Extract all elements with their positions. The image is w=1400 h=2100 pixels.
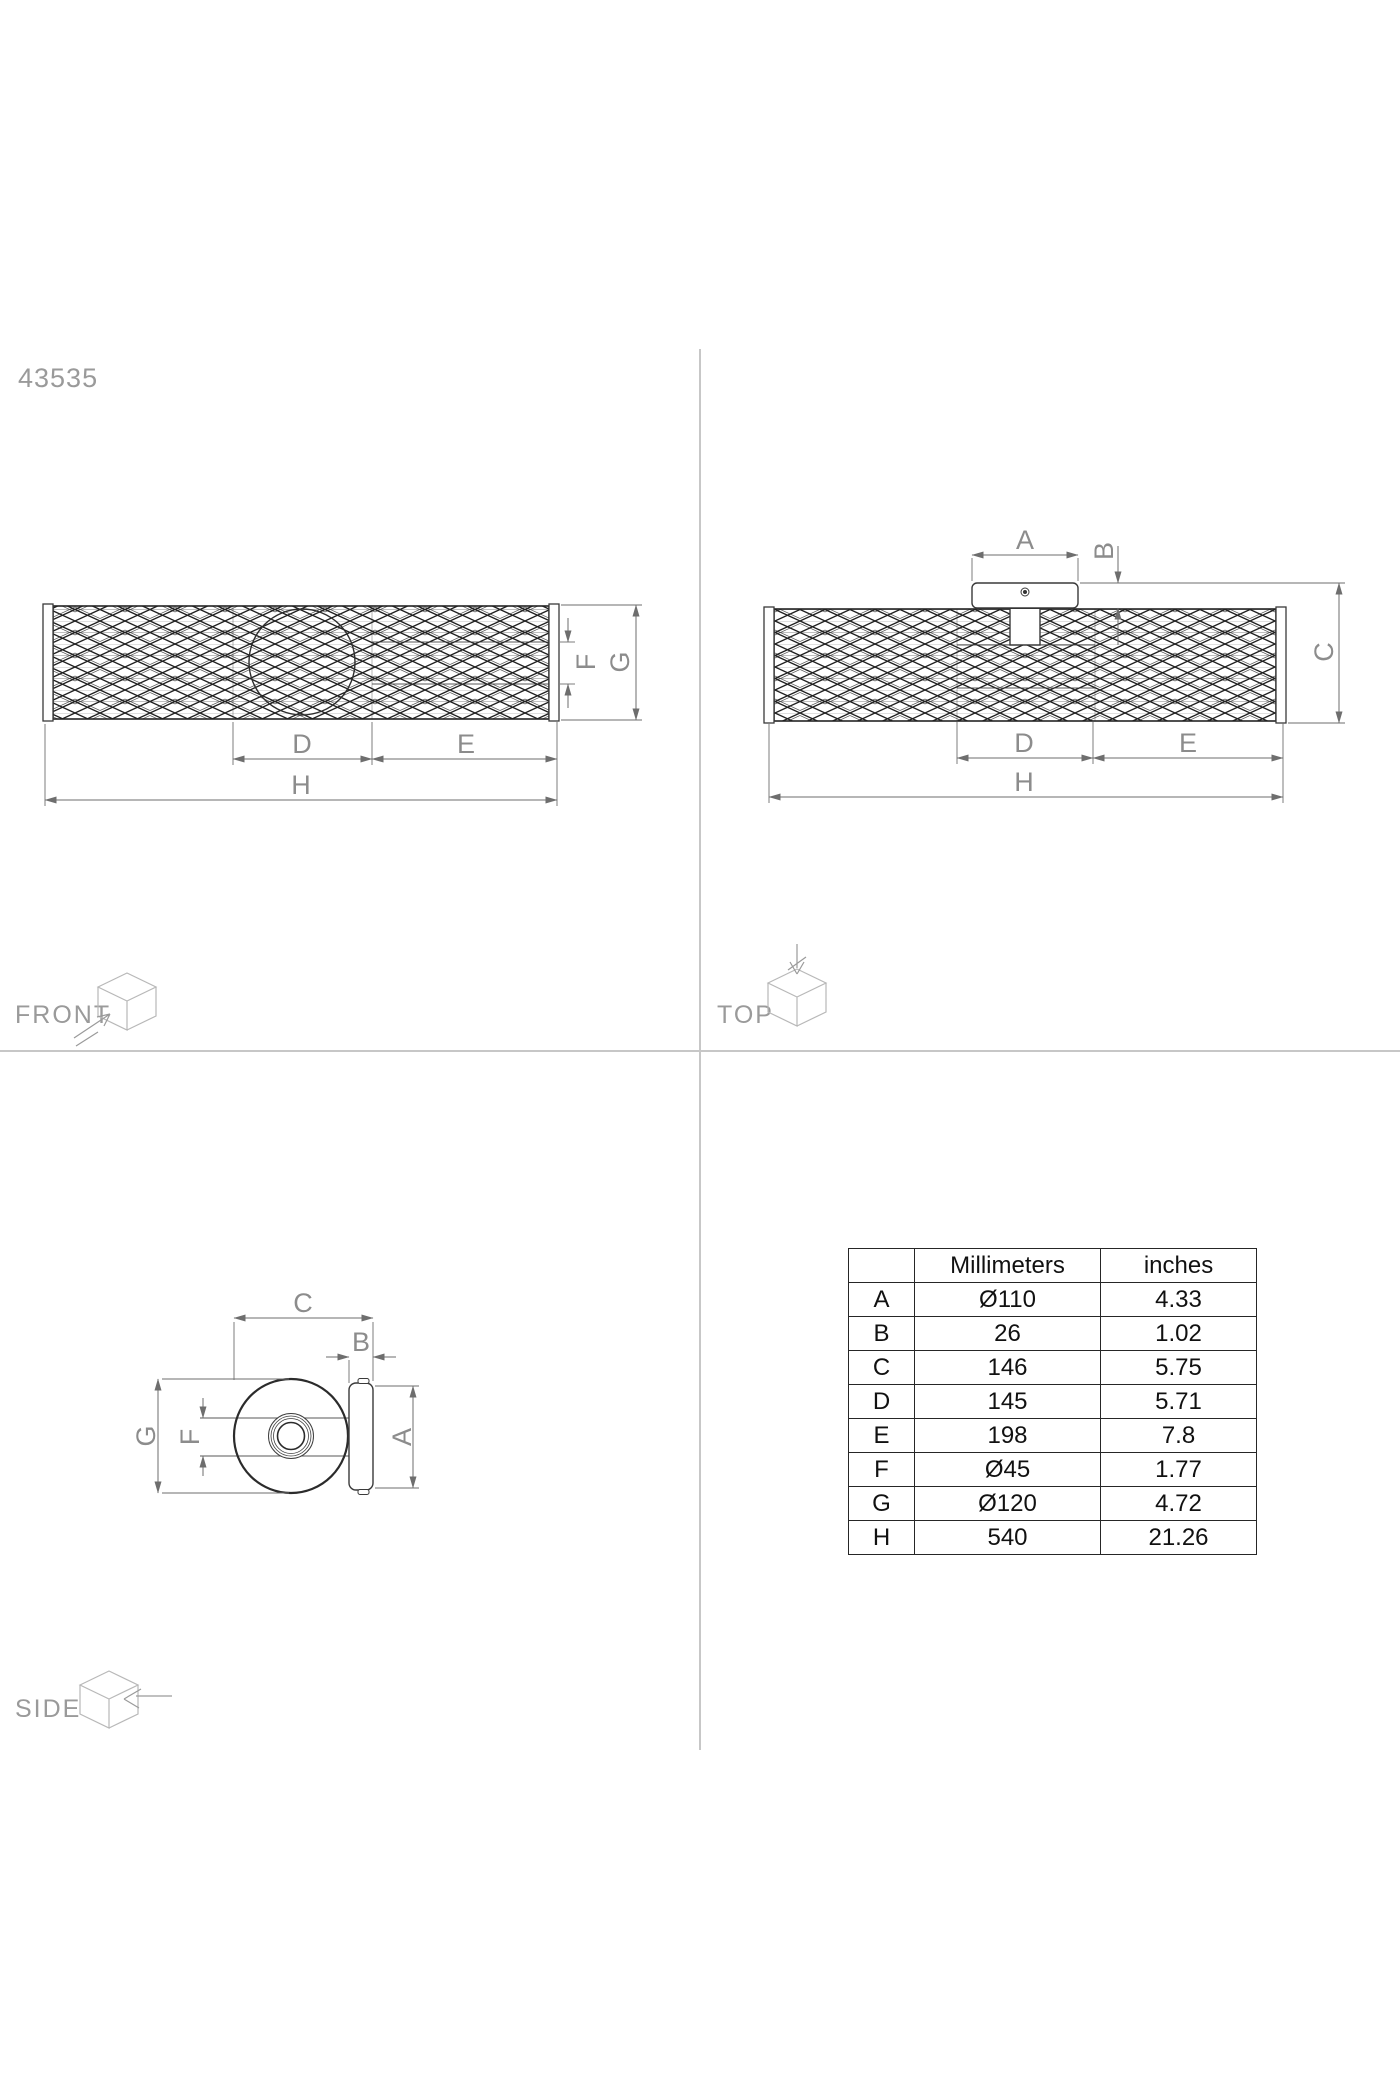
table-cell-mm: Ø45 [915, 1453, 1101, 1487]
dim-label-a-side: A [387, 1428, 417, 1446]
top-end-cap-left [764, 607, 774, 723]
dim-b-side: B [326, 1327, 396, 1383]
table-cell-in: 4.72 [1101, 1487, 1257, 1521]
table-row: B261.02 [849, 1317, 1257, 1351]
table-row: D1455.71 [849, 1385, 1257, 1419]
dim-label-d-front: D [292, 729, 312, 759]
dim-a-side: A [375, 1386, 419, 1488]
table-cell-key: A [849, 1283, 915, 1317]
table-row: E1987.8 [849, 1419, 1257, 1453]
dim-e-top: E [1093, 723, 1283, 803]
top-socket-stem [1010, 609, 1040, 645]
dim-label-f-side: F [175, 1429, 205, 1446]
top-view: A B C D E H [764, 525, 1345, 803]
side-plate-tab-top [358, 1379, 369, 1384]
table-cell-key: C [849, 1351, 915, 1385]
side-plate-tab-bottom [358, 1490, 369, 1495]
front-mesh [53, 606, 549, 719]
dim-label-g-side: G [131, 1425, 161, 1446]
dim-f-front: F [560, 618, 601, 708]
table-row: GØ1204.72 [849, 1487, 1257, 1521]
dim-label-h-front: H [291, 770, 311, 800]
table-cell-in: 1.77 [1101, 1453, 1257, 1487]
table-cell-mm: 26 [915, 1317, 1101, 1351]
dim-label-e-top: E [1179, 728, 1197, 758]
side-view: C B G F A [131, 1288, 419, 1495]
technical-drawing: 43535 F G D [0, 0, 1400, 2100]
table-cell-key: G [849, 1487, 915, 1521]
table-cell-in: 21.26 [1101, 1521, 1257, 1555]
dim-label-h-top: H [1014, 767, 1034, 797]
table-cell-in: 1.02 [1101, 1317, 1257, 1351]
table-cell-in: 5.75 [1101, 1351, 1257, 1385]
dim-label-b-side: B [352, 1327, 370, 1357]
dim-label-a-top: A [1016, 525, 1034, 555]
side-mount-plate [349, 1383, 373, 1490]
side-view-label: SIDE [15, 1695, 81, 1723]
table-row: C1465.75 [849, 1351, 1257, 1385]
dim-e-front: E [372, 722, 557, 806]
dim-label-g-front: G [605, 651, 635, 672]
table-row: FØ451.77 [849, 1453, 1257, 1487]
table-cell-key: B [849, 1317, 915, 1351]
dimensions-table: Millimeters inches AØ1104.33B261.02C1465… [848, 1248, 1257, 1550]
dim-f-side: F [175, 1398, 205, 1476]
front-end-cap-right [549, 604, 559, 721]
table-cell-key: H [849, 1521, 915, 1555]
table-cell-in: 7.8 [1101, 1419, 1257, 1453]
dimensions-table-body: AØ1104.33B261.02C1465.75D1455.71E1987.8F… [849, 1283, 1257, 1555]
table-cell-key: D [849, 1385, 915, 1419]
table-cell-mm: Ø120 [915, 1487, 1101, 1521]
table-row: AØ1104.33 [849, 1283, 1257, 1317]
top-end-cap-right [1276, 607, 1286, 723]
table-cell-in: 5.71 [1101, 1385, 1257, 1419]
dim-label-b-top: B [1089, 542, 1119, 560]
table-cell-mm: Ø110 [915, 1283, 1101, 1317]
top-view-cube-icon [768, 944, 826, 1026]
dim-a-top: A [972, 525, 1078, 581]
dim-label-f-front: F [571, 654, 601, 671]
table-cell-mm: 145 [915, 1385, 1101, 1419]
table-cell-mm: 146 [915, 1351, 1101, 1385]
front-view-label: FRONT [15, 1001, 111, 1029]
dim-d-front: D [233, 722, 372, 765]
dim-label-c-top: C [1309, 642, 1339, 662]
table-cell-mm: 540 [915, 1521, 1101, 1555]
table-cell-mm: 198 [915, 1419, 1101, 1453]
table-row: H54021.26 [849, 1521, 1257, 1555]
front-end-cap-left [43, 604, 53, 721]
front-view: F G D E H [43, 604, 642, 806]
side-view-cube-icon [80, 1671, 172, 1728]
table-header-millimeters: Millimeters [915, 1249, 1101, 1283]
dim-label-e-front: E [457, 729, 475, 759]
product-code: 43535 [18, 363, 98, 393]
dim-label-d-top: D [1014, 728, 1034, 758]
screw-center [1023, 590, 1027, 594]
side-socket-hole [278, 1423, 305, 1450]
top-view-label: TOP [717, 1001, 774, 1029]
table-cell-key: F [849, 1453, 915, 1487]
table-cell-in: 4.33 [1101, 1283, 1257, 1317]
dim-g-side: G [131, 1379, 289, 1493]
table-cell-key: E [849, 1419, 915, 1453]
table-header-inches: inches [1101, 1249, 1257, 1283]
dim-label-c-side: C [293, 1288, 313, 1318]
table-header-key [849, 1249, 915, 1283]
table-header-row: Millimeters inches [849, 1249, 1257, 1283]
dim-d-top: D [957, 722, 1093, 764]
